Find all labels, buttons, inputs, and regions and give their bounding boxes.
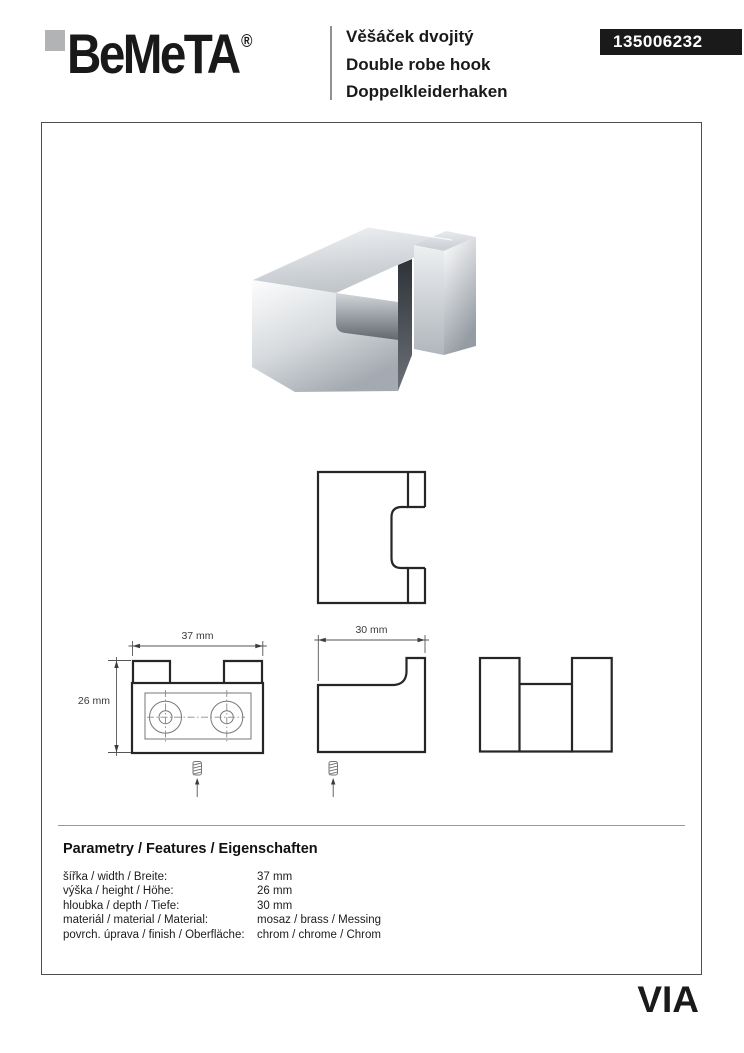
parameter-row: hloubka / depth / Tiefe:30 mm xyxy=(63,899,381,913)
parameters-heading: Parametry / Features / Eigenschaften xyxy=(63,841,318,857)
parameter-row: výška / height / Höhe:26 mm xyxy=(63,884,381,898)
screw-icon xyxy=(329,762,338,798)
rear-left-prong xyxy=(480,658,520,752)
depth-arrow-left xyxy=(318,638,326,642)
width-dim-label: 37 mm xyxy=(181,630,213,642)
parameter-label: výška / height / Höhe: xyxy=(63,884,257,898)
parameter-value: chrom / chrome / Chrom xyxy=(257,929,381,941)
dimension-height: 26 mm xyxy=(78,657,131,756)
depth-dim-label: 30 mm xyxy=(355,624,387,636)
rear-right-prong xyxy=(572,658,612,752)
side-view: 30 mm xyxy=(314,624,429,797)
rear-view xyxy=(480,658,612,752)
parameter-value: mosaz / brass / Messing xyxy=(257,914,381,926)
parameter-label: povrch. úprava / finish / Oberfläche: xyxy=(63,928,257,942)
front-right-prong xyxy=(224,661,262,683)
hook-profile-view xyxy=(318,472,425,603)
parameter-label: šířka / width / Breite: xyxy=(63,870,257,884)
width-ext-lines xyxy=(133,641,263,656)
screw-threads xyxy=(330,763,338,774)
parameters-table: šířka / width / Breite:37 mm výška / hei… xyxy=(63,870,381,942)
rear-middle-lines xyxy=(520,684,573,752)
height-dim-label: 26 mm xyxy=(78,695,110,707)
dimension-depth: 30 mm xyxy=(314,624,429,681)
parameter-row: povrch. úprava / finish / Oberfläche:chr… xyxy=(63,928,381,942)
parameter-label: materiál / material / Material: xyxy=(63,913,257,927)
depth-arrow-right xyxy=(418,638,426,642)
screw-threads xyxy=(194,763,202,774)
height-arrow-top xyxy=(114,661,118,669)
front-left-prong xyxy=(133,661,170,683)
parameter-value: 30 mm xyxy=(257,900,292,912)
screw-arrow-head xyxy=(195,778,199,785)
width-arrow-left xyxy=(133,644,141,648)
profile-notch-curve xyxy=(392,507,409,568)
height-ext-lines xyxy=(108,661,131,753)
centerlines xyxy=(147,690,245,744)
parameter-value: 26 mm xyxy=(257,885,292,897)
parameter-row: šířka / width / Breite:37 mm xyxy=(63,870,381,884)
width-arrow-right xyxy=(255,644,262,648)
height-arrow-bottom xyxy=(114,745,118,753)
parameter-label: hloubka / depth / Tiefe: xyxy=(63,899,257,913)
profile-flange-lines xyxy=(408,472,425,603)
datasheet-page: BeMeTA® Věšáček dvojitý Double robe hook… xyxy=(0,0,744,1053)
screw-arrow-head xyxy=(331,778,335,785)
series-logo-via: VIA xyxy=(637,981,699,1018)
front-view: 37 mm 26 mm xyxy=(78,630,267,797)
dimension-width: 37 mm xyxy=(129,630,267,656)
parameter-value: 37 mm xyxy=(257,871,292,883)
section-divider xyxy=(58,825,685,826)
screw-icon xyxy=(193,762,202,798)
parameter-row: materiál / material / Material:mosaz / b… xyxy=(63,913,381,927)
side-outline xyxy=(318,658,425,752)
